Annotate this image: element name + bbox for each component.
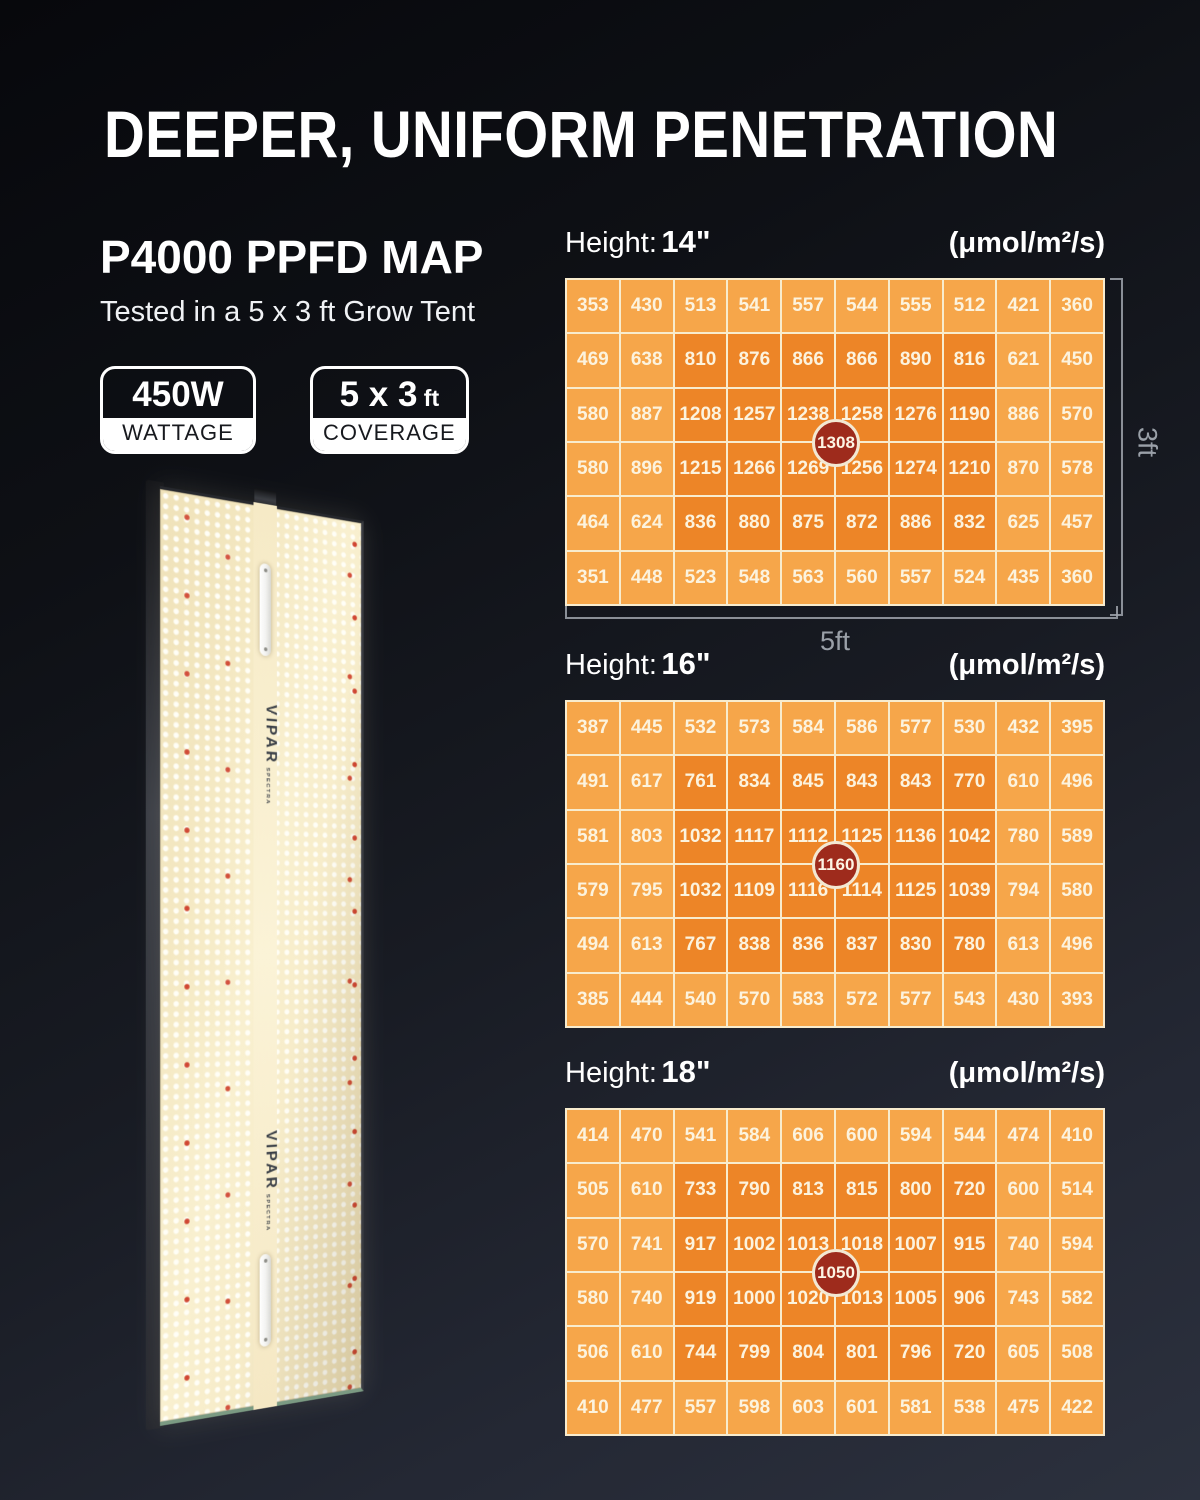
ppfd-cell: 430 — [997, 974, 1049, 1026]
width-dimension-bracket — [565, 606, 1118, 619]
ppfd-section-16in: Height: 16" (μmol/m²/s) 3874455325735845… — [565, 646, 1105, 1030]
brand-subname: SPECTRA — [265, 1194, 270, 1232]
test-caption: Tested in a 5 x 3 ft Grow Tent — [100, 296, 475, 329]
ppfd-cell: 385 — [567, 974, 619, 1026]
ppfd-cell: 494 — [567, 919, 619, 971]
height-label: Height: — [565, 227, 657, 259]
ppfd-cell: 544 — [944, 1110, 996, 1162]
ppfd-cell: 1002 — [728, 1219, 780, 1271]
peak-value-badge: 1160 — [812, 841, 860, 889]
brand-logo-bottom: VIPAR SPECTRA — [262, 1130, 278, 1232]
ppfd-cell: 582 — [1051, 1273, 1103, 1325]
ppfd-cell: 422 — [1051, 1382, 1103, 1434]
ppfd-cell: 578 — [1051, 443, 1103, 495]
ppfd-cell: 624 — [621, 497, 673, 549]
ppfd-cell: 744 — [675, 1327, 727, 1379]
ppfd-cell: 613 — [997, 919, 1049, 971]
ppfd-cell: 801 — [836, 1327, 888, 1379]
ppfd-cell: 1109 — [728, 865, 780, 917]
ppfd-cell: 560 — [836, 552, 888, 604]
ppfd-cell: 580 — [567, 389, 619, 441]
wattage-value: 450W — [103, 369, 253, 418]
ppfd-cell: 1274 — [890, 443, 942, 495]
brand-logo-top: VIPAR SPECTRA — [262, 704, 278, 806]
ppfd-cell: 1039 — [944, 865, 996, 917]
ppfd-cell: 761 — [675, 756, 727, 808]
wattage-number: 450W — [132, 375, 223, 414]
ppfd-cell: 813 — [782, 1164, 834, 1216]
ppfd-cell: 506 — [567, 1327, 619, 1379]
ppfd-cell: 444 — [621, 974, 673, 1026]
height-label: Height: — [565, 1057, 657, 1089]
ppfd-cell: 872 — [836, 497, 888, 549]
ppfd-cell: 1042 — [944, 811, 996, 863]
height-title: Height: 18" — [565, 1054, 711, 1090]
diffuser-bar-bottom — [260, 1253, 271, 1347]
ppfd-cell: 589 — [1051, 811, 1103, 863]
ppfd-cell: 876 — [728, 334, 780, 386]
ppfd-cell: 915 — [944, 1219, 996, 1271]
ppfd-cell: 601 — [836, 1382, 888, 1434]
ppfd-cell: 810 — [675, 334, 727, 386]
grow-light-panel: VIPAR SPECTRA VIPAR SPECTRA — [160, 486, 364, 1426]
height-value: 18" — [661, 1054, 710, 1089]
ppfd-cell: 896 — [621, 443, 673, 495]
ppfd-cell: 880 — [728, 497, 780, 549]
spec-badges: 450W WATTAGE 5 x 3 ft COVERAGE — [100, 366, 469, 454]
ppfd-cell: 743 — [997, 1273, 1049, 1325]
ppfd-cell: 505 — [567, 1164, 619, 1216]
ppfd-cell: 532 — [675, 702, 727, 754]
ppfd-cell: 360 — [1051, 552, 1103, 604]
ppfd-cell: 770 — [944, 756, 996, 808]
ppfd-cell: 586 — [836, 702, 888, 754]
ppfd-cell: 580 — [567, 443, 619, 495]
ppfd-cell: 613 — [621, 919, 673, 971]
ppfd-cell: 543 — [944, 974, 996, 1026]
ppfd-cell: 557 — [890, 552, 942, 604]
ppfd-cell: 800 — [890, 1164, 942, 1216]
product-heading: P4000 PPFD MAP — [100, 230, 483, 284]
ppfd-section-18in: Height: 18" (μmol/m²/s) 4144705415846066… — [565, 1054, 1105, 1438]
ppfd-cell: 450 — [1051, 334, 1103, 386]
height-value: 16" — [661, 646, 710, 681]
ppfd-cell: 1215 — [675, 443, 727, 495]
ppfd-cell: 790 — [728, 1164, 780, 1216]
ppfd-cell: 432 — [997, 702, 1049, 754]
ppfd-cell: 540 — [675, 974, 727, 1026]
brand-name: VIPAR — [262, 1130, 278, 1191]
ppfd-cell: 794 — [997, 865, 1049, 917]
ppfd-cell: 1005 — [890, 1273, 942, 1325]
ppfd-cell: 541 — [728, 280, 780, 332]
ppfd-cell: 491 — [567, 756, 619, 808]
ppfd-cell: 605 — [997, 1327, 1049, 1379]
ppfd-cell: 1000 — [728, 1273, 780, 1325]
ppfd-cell: 353 — [567, 280, 619, 332]
ppfd-cell: 513 — [675, 280, 727, 332]
ppfd-cell: 600 — [997, 1164, 1049, 1216]
ppfd-cell: 351 — [567, 552, 619, 604]
ppfd-cell: 1007 — [890, 1219, 942, 1271]
ppfd-cell: 838 — [728, 919, 780, 971]
ppfd-cell: 448 — [621, 552, 673, 604]
ppfd-cell: 1257 — [728, 389, 780, 441]
ppfd-cell: 816 — [944, 334, 996, 386]
ppfd-cell: 886 — [890, 497, 942, 549]
ppfd-cell: 538 — [944, 1382, 996, 1434]
ppfd-cell: 557 — [782, 280, 834, 332]
ppfd-cell: 563 — [782, 552, 834, 604]
height-value: 14" — [661, 224, 710, 259]
ppfd-cell: 875 — [782, 497, 834, 549]
ppfd-cell: 866 — [782, 334, 834, 386]
ppfd-cell: 830 — [890, 919, 942, 971]
ppfd-cell: 580 — [567, 1273, 619, 1325]
ppfd-cell: 557 — [675, 1382, 727, 1434]
ppfd-cell: 625 — [997, 497, 1049, 549]
ppfd-cell: 836 — [675, 497, 727, 549]
ppfd-cell: 512 — [944, 280, 996, 332]
ppfd-cell: 496 — [1051, 756, 1103, 808]
ppfd-cell: 583 — [782, 974, 834, 1026]
ppfd-cell: 733 — [675, 1164, 727, 1216]
ppfd-cell: 548 — [728, 552, 780, 604]
infographic-canvas: DEEPER, UNIFORM PENETRATION P4000 PPFD M… — [0, 0, 1200, 1500]
ppfd-cell: 803 — [621, 811, 673, 863]
ppfd-cell: 1208 — [675, 389, 727, 441]
ppfd-cell: 581 — [890, 1382, 942, 1434]
ppfd-cell: 610 — [621, 1327, 673, 1379]
ppfd-cell: 845 — [782, 756, 834, 808]
units-label: (μmol/m²/s) — [949, 1057, 1105, 1090]
ppfd-cell: 573 — [728, 702, 780, 754]
brand-subname: SPECTRA — [265, 767, 270, 805]
diffuser-bar-top — [260, 563, 271, 657]
ppfd-cell: 477 — [621, 1382, 673, 1434]
height-title: Height: 16" — [565, 646, 711, 682]
ppfd-cell: 470 — [621, 1110, 673, 1162]
ppfd-cell: 555 — [890, 280, 942, 332]
ppfd-cell: 741 — [621, 1219, 673, 1271]
ppfd-cell: 496 — [1051, 919, 1103, 971]
ppfd-cell: 617 — [621, 756, 673, 808]
ppfd-cell: 720 — [944, 1327, 996, 1379]
ppfd-cell: 795 — [621, 865, 673, 917]
coverage-badge: 5 x 3 ft COVERAGE — [310, 366, 469, 454]
ppfd-cell: 1210 — [944, 443, 996, 495]
ppfd-cell: 581 — [567, 811, 619, 863]
ppfd-cell: 579 — [567, 865, 619, 917]
ppfd-cell: 815 — [836, 1164, 888, 1216]
height-dimension-label: 3ft — [1132, 278, 1162, 606]
ppfd-cell: 836 — [782, 919, 834, 971]
page-title: DEEPER, UNIFORM PENETRATION — [104, 96, 1058, 172]
ppfd-cell: 919 — [675, 1273, 727, 1325]
ppfd-cell: 577 — [890, 702, 942, 754]
coverage-label: COVERAGE — [313, 418, 466, 451]
ppfd-cell: 1266 — [728, 443, 780, 495]
ppfd-cell: 866 — [836, 334, 888, 386]
ppfd-cell: 572 — [836, 974, 888, 1026]
table-header-14in: Height: 14" (μmol/m²/s) — [565, 224, 1105, 264]
ppfd-cell: 740 — [621, 1273, 673, 1325]
ppfd-cell: 610 — [997, 756, 1049, 808]
units-label: (μmol/m²/s) — [949, 227, 1105, 260]
ppfd-cell: 887 — [621, 389, 673, 441]
ppfd-cell: 435 — [997, 552, 1049, 604]
ppfd-cell: 577 — [890, 974, 942, 1026]
ppfd-cell: 870 — [997, 443, 1049, 495]
ppfd-cell: 570 — [728, 974, 780, 1026]
ppfd-cell: 544 — [836, 280, 888, 332]
ppfd-cell: 638 — [621, 334, 673, 386]
ppfd-cell: 594 — [1051, 1219, 1103, 1271]
ppfd-cell: 594 — [890, 1110, 942, 1162]
ppfd-cell: 570 — [1051, 389, 1103, 441]
ppfd-cell: 1117 — [728, 811, 780, 863]
ppfd-cell: 508 — [1051, 1327, 1103, 1379]
ppfd-cell: 598 — [728, 1382, 780, 1434]
ppfd-cell: 584 — [728, 1110, 780, 1162]
ppfd-cell: 606 — [782, 1110, 834, 1162]
ppfd-cell: 610 — [621, 1164, 673, 1216]
ppfd-cell: 834 — [728, 756, 780, 808]
ppfd-cell: 530 — [944, 702, 996, 754]
ppfd-cell: 410 — [1051, 1110, 1103, 1162]
ppfd-cell: 804 — [782, 1327, 834, 1379]
ppfd-cell: 1190 — [944, 389, 996, 441]
ppfd-cell: 799 — [728, 1327, 780, 1379]
ppfd-cell: 580 — [1051, 865, 1103, 917]
ppfd-cell: 523 — [675, 552, 727, 604]
ppfd-cell: 720 — [944, 1164, 996, 1216]
ppfd-cell: 457 — [1051, 497, 1103, 549]
ppfd-cell: 410 — [567, 1382, 619, 1434]
coverage-suffix: ft — [417, 385, 439, 411]
height-title: Height: 14" — [565, 224, 711, 260]
table-header-18in: Height: 18" (μmol/m²/s) — [565, 1054, 1105, 1094]
wattage-label: WATTAGE — [103, 418, 253, 451]
ppfd-cell: 1125 — [890, 865, 942, 917]
ppfd-cell: 1276 — [890, 389, 942, 441]
coverage-value: 5 x 3 ft — [313, 369, 466, 418]
ppfd-cell: 917 — [675, 1219, 727, 1271]
ppfd-cell: 475 — [997, 1382, 1049, 1434]
brand-name: VIPAR — [262, 704, 278, 766]
ppfd-section-14in: Height: 14" (μmol/m²/s) 3534305135415575… — [565, 224, 1105, 608]
ppfd-cell: 1032 — [675, 811, 727, 863]
peak-value-badge: 1308 — [812, 419, 860, 467]
ppfd-cell: 474 — [997, 1110, 1049, 1162]
table-header-16in: Height: 16" (μmol/m²/s) — [565, 646, 1105, 686]
ppfd-cell: 393 — [1051, 974, 1103, 1026]
ppfd-cell: 767 — [675, 919, 727, 971]
ppfd-cell: 430 — [621, 280, 673, 332]
ppfd-cell: 464 — [567, 497, 619, 549]
ppfd-cell: 906 — [944, 1273, 996, 1325]
units-label: (μmol/m²/s) — [949, 649, 1105, 682]
peak-value-badge: 1050 — [812, 1249, 860, 1297]
ppfd-cell: 414 — [567, 1110, 619, 1162]
ppfd-cell: 584 — [782, 702, 834, 754]
ppfd-cell: 780 — [997, 811, 1049, 863]
height-dimension-bracket — [1110, 278, 1123, 616]
ppfd-cell: 886 — [997, 389, 1049, 441]
ppfd-cell: 843 — [836, 756, 888, 808]
ppfd-cell: 843 — [890, 756, 942, 808]
ppfd-cell: 621 — [997, 334, 1049, 386]
ppfd-cell: 360 — [1051, 280, 1103, 332]
ppfd-cell: 780 — [944, 919, 996, 971]
ppfd-cell: 514 — [1051, 1164, 1103, 1216]
ppfd-cell: 387 — [567, 702, 619, 754]
wattage-badge: 450W WATTAGE — [100, 366, 256, 454]
ppfd-cell: 796 — [890, 1327, 942, 1379]
ppfd-cell: 837 — [836, 919, 888, 971]
ppfd-cell: 832 — [944, 497, 996, 549]
ppfd-cell: 1032 — [675, 865, 727, 917]
ppfd-cell: 890 — [890, 334, 942, 386]
ppfd-cell: 395 — [1051, 702, 1103, 754]
height-label: Height: — [565, 649, 657, 681]
ppfd-cell: 541 — [675, 1110, 727, 1162]
ppfd-cell: 421 — [997, 280, 1049, 332]
ppfd-cell: 740 — [997, 1219, 1049, 1271]
ppfd-cell: 469 — [567, 334, 619, 386]
ppfd-cell: 524 — [944, 552, 996, 604]
ppfd-cell: 600 — [836, 1110, 888, 1162]
coverage-number: 5 x 3 — [340, 375, 418, 414]
ppfd-cell: 1136 — [890, 811, 942, 863]
ppfd-cell: 570 — [567, 1219, 619, 1271]
ppfd-cell: 445 — [621, 702, 673, 754]
ppfd-cell: 603 — [782, 1382, 834, 1434]
